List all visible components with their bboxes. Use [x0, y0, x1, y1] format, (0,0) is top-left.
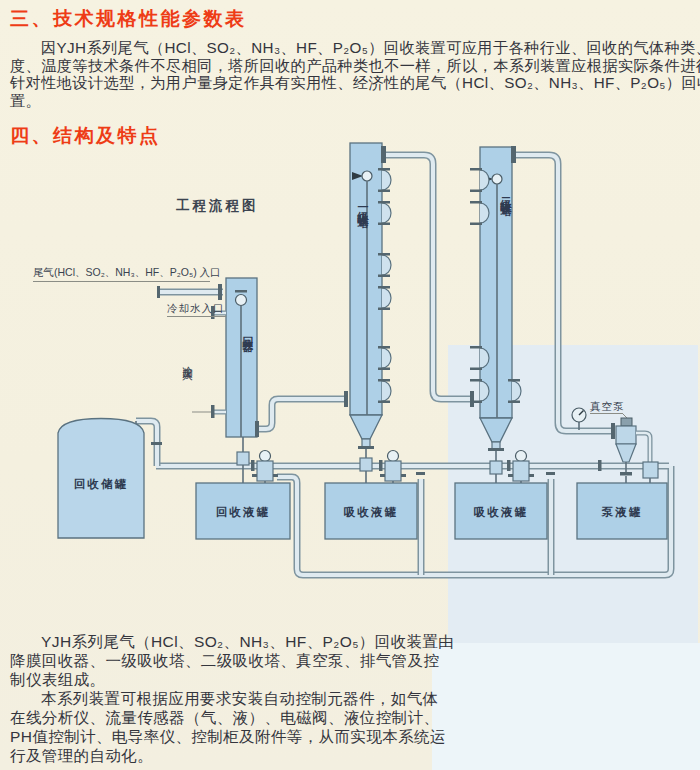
tower1-drain-to-tank2 — [360, 449, 372, 483]
body-paragraph-line: 降膜回收器、一级吸收塔、二级吸收塔、真空泵、排气管及控 — [10, 651, 696, 672]
body-paragraph-line: 行及管理的自动化。 — [10, 746, 696, 767]
recovery-unit-column — [226, 278, 257, 437]
cooling-water-inlet-stub-lower — [192, 405, 226, 418]
column-drain-to-tank1 — [237, 437, 249, 483]
tail-gas-inlet-pipe — [157, 284, 223, 300]
body-paragraph-line: 置。 — [10, 91, 696, 112]
body-paragraph-line: PH值控制计、电导率仪、控制柜及附件等，从而实现本系统运 — [10, 727, 696, 748]
flow-diagram-title: 工程流程图 — [176, 197, 259, 215]
body-paragraph-line: 制仪表组成。 — [10, 670, 696, 691]
column-to-tower1-pipe — [255, 391, 348, 437]
catalog-page: 三、技术规格性能参数表 因YJH系列尾气（HCl、SO₂、NH₃、HF、P₂O₅… — [0, 0, 700, 770]
tail-gas-inlet-label: 尾气(HCl、SO₂、NH₃、HF、P₂O₅) 入口 — [33, 266, 221, 280]
body-paragraph-line: 本系列装置可根据应用要求安装自动控制元器件，如气体 — [10, 689, 700, 710]
body-paragraph-line: YJH系列尾气（HCl、SO₂、NH₃、HF、P₂O₅）回收装置由 — [10, 632, 700, 653]
cooling-water-inlet-label-lower: 冷却水入口 — [181, 358, 195, 363]
section-heading-3: 三、技术规格性能参数表 — [10, 6, 247, 32]
tower2-label: 二级吸收塔 — [498, 188, 513, 198]
cooling-water-inlet-label-upper: 冷却水入口 — [167, 302, 225, 316]
storage-tank-label: 回收储罐 — [58, 477, 144, 492]
tank4-label: 泵液罐 — [577, 505, 667, 520]
tank1-label: 回收液罐 — [196, 505, 290, 520]
cooling-water-label-underline — [167, 316, 226, 317]
vacuum-pump-label-underline — [590, 413, 623, 414]
tank2-label: 吸收液罐 — [325, 505, 417, 520]
tank3-label: 吸收液罐 — [455, 505, 547, 520]
vacuum-pump-label: 真空泵 — [590, 400, 625, 414]
body-paragraph-line: 在线分析仪、流量传感器（气、液）、电磁阀、液位控制计、 — [10, 708, 696, 729]
tail-gas-label-underline — [33, 281, 210, 282]
absorption-tower-1 — [350, 143, 382, 449]
tower1-label: 一级吸收塔 — [355, 200, 370, 210]
section-heading-4: 四、结构及特点 — [10, 123, 161, 149]
recovery-unit-label: 回收器 — [240, 328, 255, 334]
